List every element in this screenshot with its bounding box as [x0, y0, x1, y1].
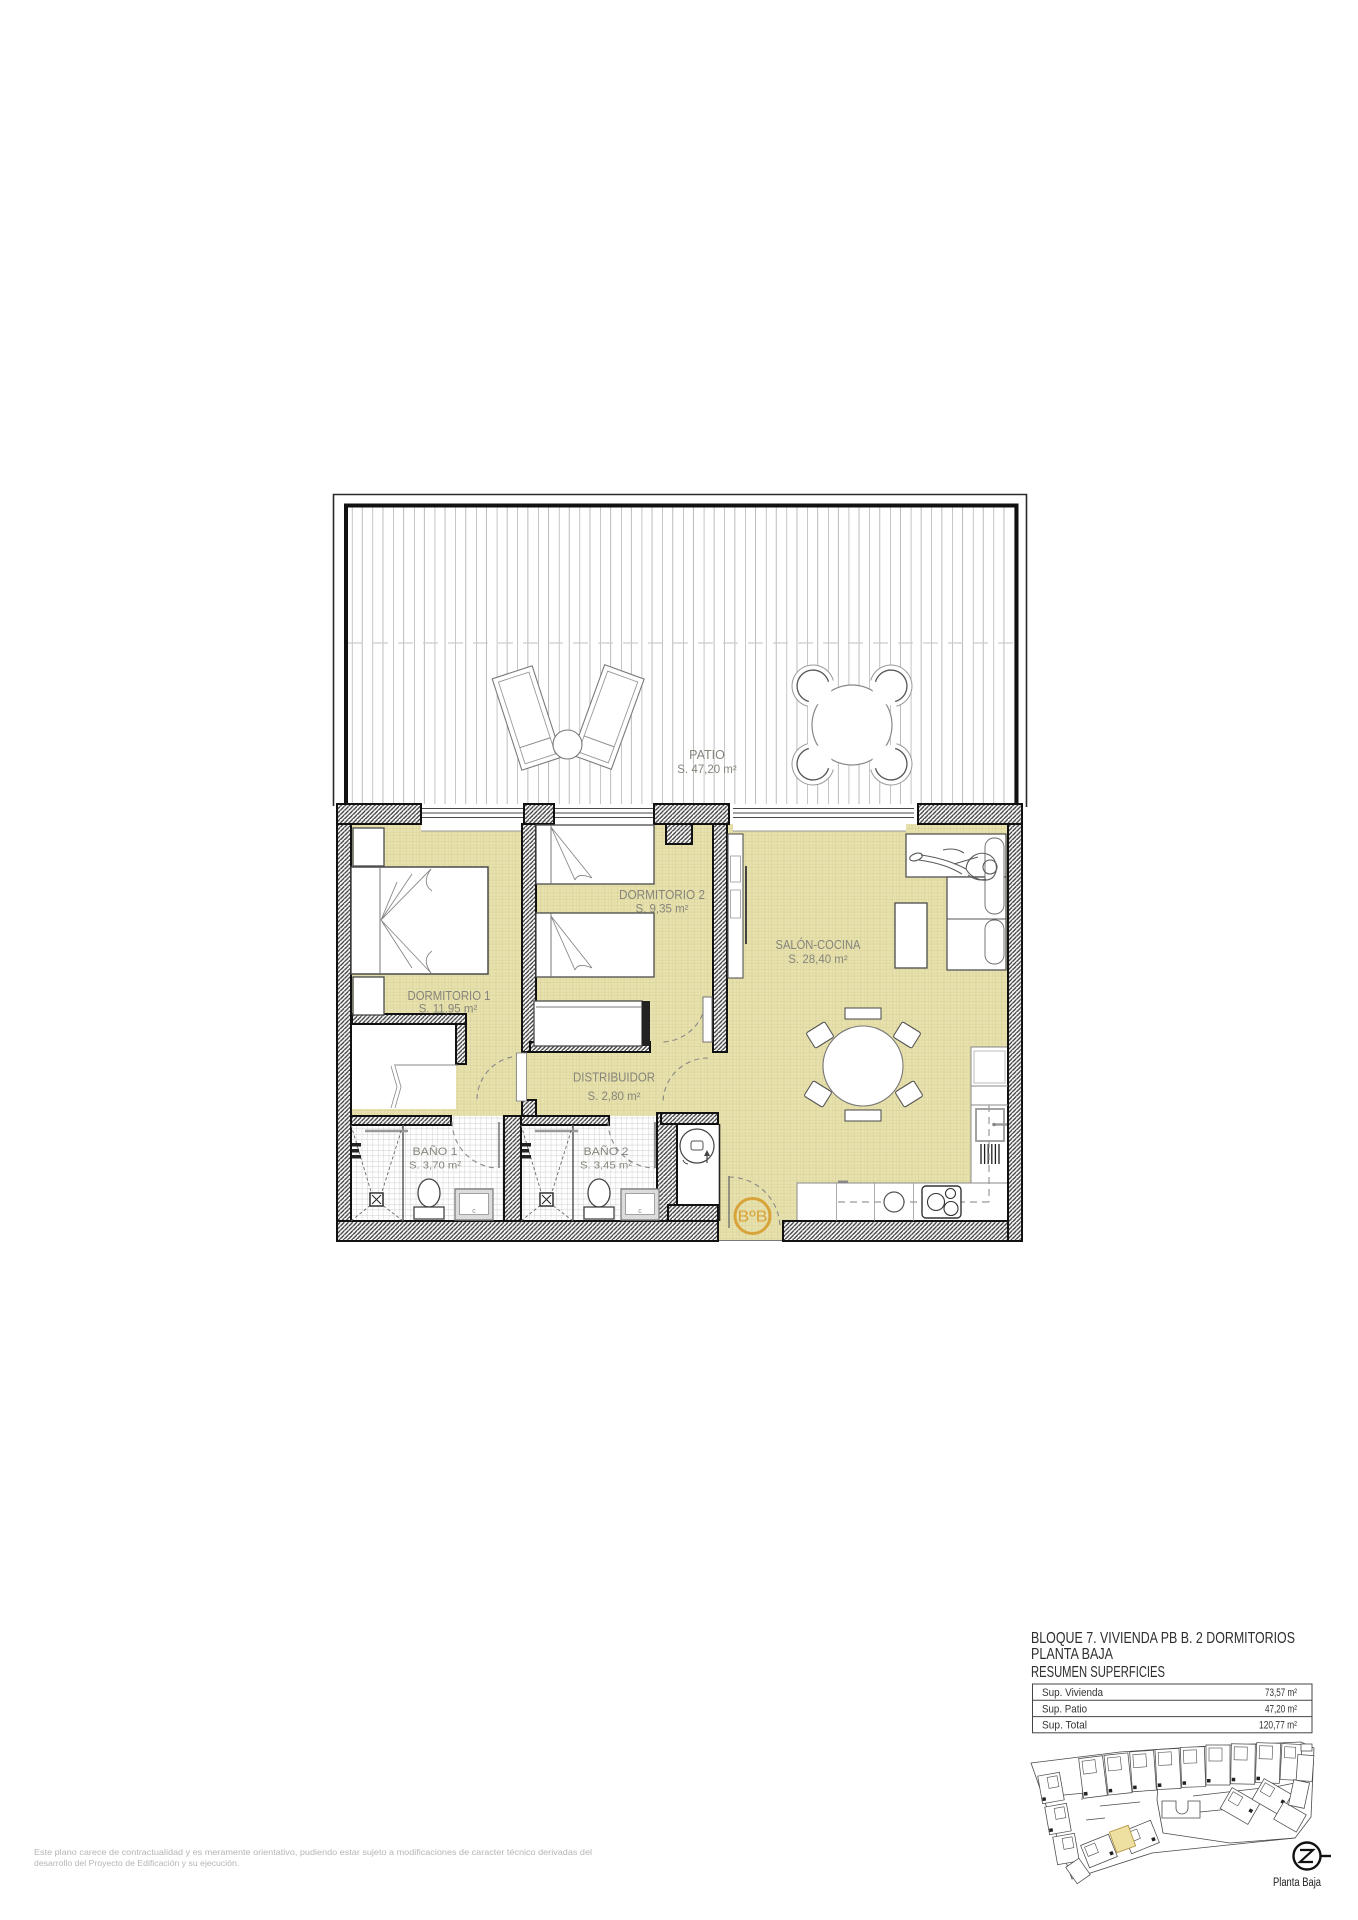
svg-text:BAÑO 1: BAÑO 1	[413, 1145, 458, 1158]
svg-text:BºB: BºB	[738, 1209, 768, 1226]
svg-text:c: c	[638, 1208, 642, 1215]
svg-text:DISTRIBUIDOR: DISTRIBUIDOR	[573, 1071, 655, 1085]
svg-text:S. 11,95 m²: S. 11,95 m²	[419, 1004, 478, 1016]
svg-text:SALÓN-COCINA: SALÓN-COCINA	[776, 937, 862, 952]
svg-text:c: c	[472, 1208, 476, 1215]
svg-text:BAÑO 2: BAÑO 2	[584, 1145, 629, 1158]
svg-text:S. 3,70 m²: S. 3,70 m²	[409, 1160, 462, 1172]
svg-text:Sup. Vivienda: Sup. Vivienda	[1042, 1687, 1104, 1699]
svg-text:S. 2,80 m²: S. 2,80 m²	[587, 1091, 640, 1103]
svg-text:120,77 m²: 120,77 m²	[1259, 1720, 1297, 1732]
svg-text:RESUMEN SUPERFICIES: RESUMEN SUPERFICIES	[1031, 1664, 1165, 1681]
svg-text:Este plano carece de contractu: Este plano carece de contractualidad y e…	[34, 1847, 592, 1857]
svg-text:DORMITORIO 1: DORMITORIO 1	[408, 989, 491, 1003]
svg-text:Sup. Total: Sup. Total	[1042, 1720, 1087, 1732]
svg-text:47,20 m²: 47,20 m²	[1265, 1703, 1297, 1715]
svg-text:desarrollo del Proyecto de Edi: desarrollo del Proyecto de Edificación y…	[34, 1858, 239, 1868]
svg-text:BLOQUE 7. VIVIENDA PB B. 2 DOR: BLOQUE 7. VIVIENDA PB B. 2 DORMITORIOS	[1031, 1630, 1295, 1647]
svg-text:S. 9,35 m²: S. 9,35 m²	[635, 904, 688, 916]
svg-text:Planta Baja: Planta Baja	[1273, 1877, 1321, 1889]
svg-text:DORMITORIO 2: DORMITORIO 2	[619, 888, 705, 902]
svg-text:PATIO: PATIO	[689, 748, 725, 762]
svg-text:PLANTA BAJA: PLANTA BAJA	[1031, 1646, 1113, 1663]
svg-text:S. 28,40 m²: S. 28,40 m²	[788, 954, 848, 966]
svg-text:S. 47,20 m²: S. 47,20 m²	[677, 764, 737, 776]
svg-text:73,57 m²: 73,57 m²	[1265, 1687, 1297, 1699]
svg-text:S. 3,45 m²: S. 3,45 m²	[580, 1160, 633, 1172]
svg-text:Sup. Patio: Sup. Patio	[1042, 1703, 1087, 1715]
